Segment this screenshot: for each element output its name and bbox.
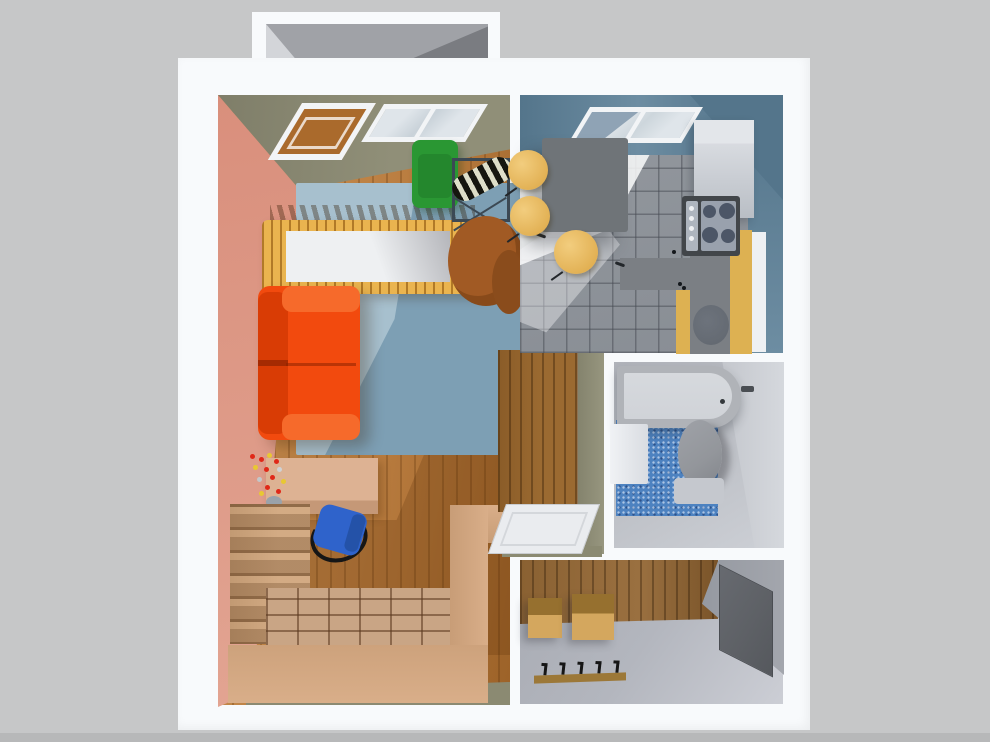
- wash-basin: [610, 424, 648, 484]
- dining-chair: [508, 150, 548, 190]
- flower-bouquet: [246, 452, 292, 512]
- cabinet-handles: [672, 250, 676, 254]
- kitchen-wall-strip: [752, 232, 766, 352]
- stove-knobs: [686, 201, 698, 251]
- bathtub: [617, 366, 741, 428]
- kitchen-counter-arm: [620, 258, 690, 290]
- floor-plan-render: [0, 0, 990, 742]
- stove: [682, 196, 740, 256]
- toilet: [678, 420, 722, 486]
- window-mullion: [414, 109, 436, 137]
- sofa-seat-divider: [286, 363, 356, 366]
- toilet-base: [674, 478, 724, 504]
- crib-mattress: [286, 231, 450, 282]
- kitchen-sink: [693, 305, 729, 345]
- storage-box: [528, 598, 562, 638]
- burner: [703, 205, 716, 218]
- balcony-door-panel: [287, 117, 356, 149]
- faucet-handle: [741, 386, 754, 392]
- door-panel: [500, 512, 588, 546]
- sofa-armrest: [282, 414, 360, 440]
- burner: [719, 203, 735, 219]
- background-edge: [0, 733, 990, 742]
- open-interior-door: [488, 504, 600, 554]
- sofa-armrest: [282, 286, 360, 312]
- dining-chair: [510, 196, 550, 236]
- burner: [721, 229, 735, 243]
- kitchen-cabinet-front: [676, 290, 690, 354]
- wardrobe: [498, 350, 580, 512]
- burner: [702, 227, 718, 243]
- stove-cooktop: [701, 201, 736, 251]
- dining-table: [542, 138, 628, 232]
- sofa: [258, 286, 360, 440]
- sofa-back-cushions: [258, 292, 288, 434]
- armchair-green-seat: [418, 154, 452, 198]
- nook-tile-floor: [266, 588, 452, 648]
- bathtub-basin: [624, 373, 732, 419]
- nook-wall: [228, 645, 488, 703]
- bathtub-drain: [720, 399, 725, 404]
- storage-box: [572, 594, 614, 640]
- dining-chair: [554, 230, 598, 274]
